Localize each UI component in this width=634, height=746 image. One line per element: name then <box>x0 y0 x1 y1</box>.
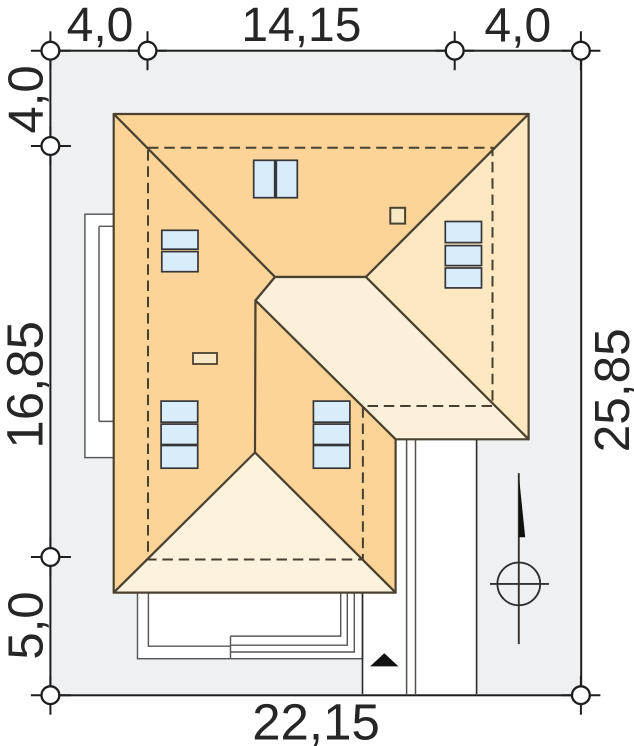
svg-text:4,0: 4,0 <box>0 65 53 133</box>
svg-text:4,0: 4,0 <box>67 0 134 52</box>
svg-text:16,85: 16,85 <box>0 321 54 449</box>
svg-text:25,85: 25,85 <box>585 328 634 452</box>
svg-text:14,15: 14,15 <box>241 0 361 52</box>
svg-text:4,0: 4,0 <box>484 0 551 53</box>
svg-text:5,0: 5,0 <box>0 591 54 659</box>
svg-text:22,15: 22,15 <box>252 694 380 746</box>
